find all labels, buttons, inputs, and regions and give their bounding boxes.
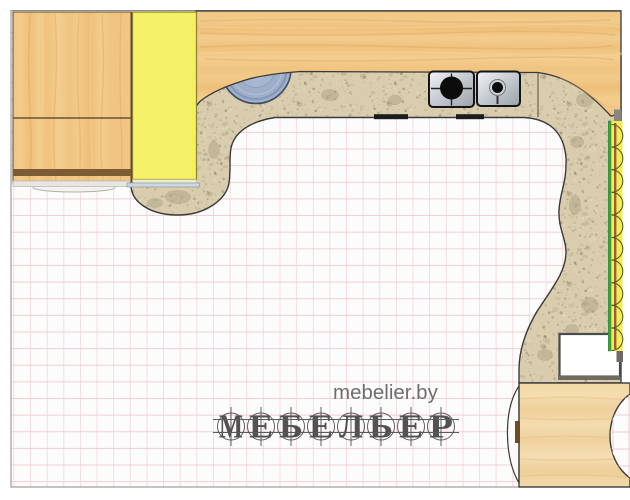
svg-text:Ь: Ь xyxy=(369,409,393,446)
svg-text:mebelier.by: mebelier.by xyxy=(333,381,439,404)
svg-text:Е: Е xyxy=(249,409,273,446)
svg-text:М: М xyxy=(219,409,243,446)
svg-text:Е: Е xyxy=(399,409,423,446)
svg-text:Е: Е xyxy=(309,409,333,446)
svg-text:Р: Р xyxy=(429,409,453,446)
svg-text:Л: Л xyxy=(339,409,363,446)
svg-text:Б: Б xyxy=(279,409,303,446)
